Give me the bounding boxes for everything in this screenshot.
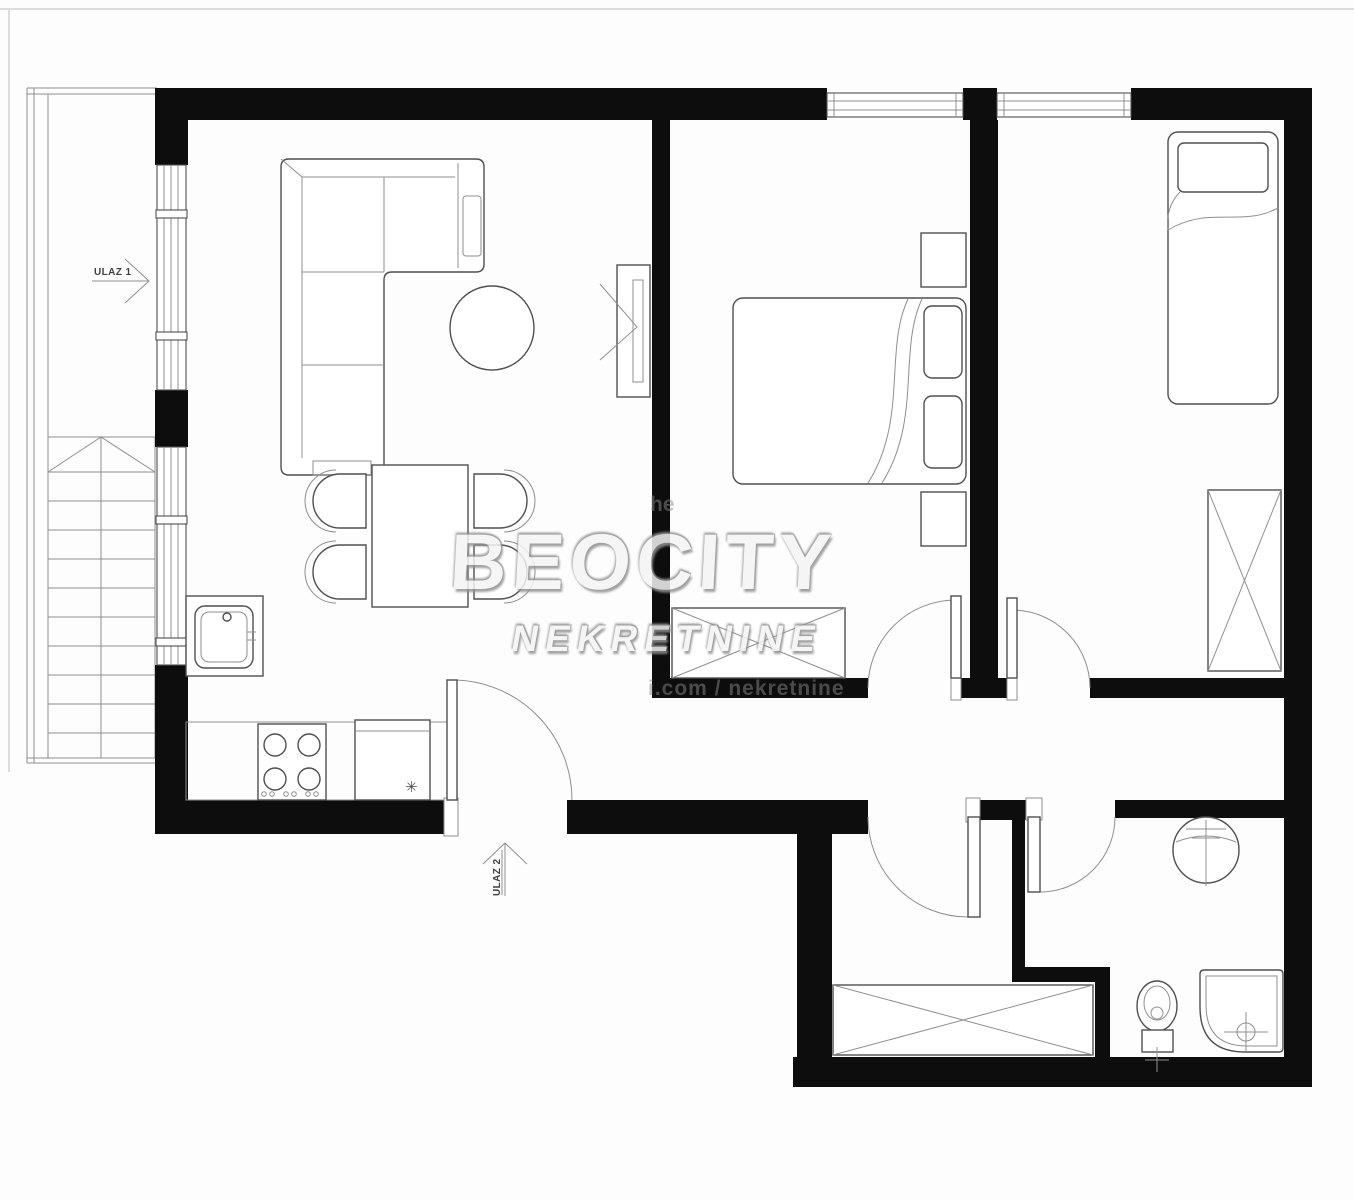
wall-bedrooms-bottom-c [1090, 678, 1284, 698]
door-swing [868, 817, 968, 917]
shower-tray [1200, 970, 1283, 1052]
living-room [281, 159, 650, 607]
door-leaf [447, 680, 457, 800]
wall-left-a [155, 88, 188, 165]
wall-bath-notch-v2 [1095, 982, 1110, 1057]
staircase [48, 437, 155, 758]
dining-chair [305, 470, 366, 532]
wardrobe [1208, 490, 1281, 671]
pillow [1178, 143, 1268, 192]
door-swing [1040, 817, 1115, 892]
floor-plan-drawing: ✳ [0, 0, 1354, 1200]
wall-kitchen-bottom [155, 800, 447, 834]
entrance-2-label: ULAZ 2 [492, 859, 503, 896]
bathroom [1137, 817, 1283, 1072]
wall-left-b [155, 390, 188, 447]
window-bedroom2 [997, 93, 1131, 117]
dining-table [372, 465, 468, 607]
wall-hall-bottom-left [567, 800, 868, 834]
wall-bedrooms-bottom-b [958, 678, 1008, 698]
washbasin [1173, 817, 1239, 886]
door-leaf [968, 817, 980, 917]
dining-chair [305, 541, 366, 603]
tv-unit [600, 265, 650, 397]
hallway [833, 798, 1115, 1055]
wall-bedroom1-bedroom2 [970, 120, 998, 678]
door-leaf [951, 596, 961, 678]
refrigerator: ✳ [355, 720, 430, 800]
nightstand [921, 233, 966, 287]
bedroom1-door [868, 596, 961, 700]
wall-bath-notch-v1 [1012, 820, 1025, 967]
entrance-door-2 [444, 680, 572, 836]
wall-bottom [793, 1057, 1312, 1087]
coffee-table [450, 286, 534, 370]
wall-bath-notch-h [1012, 967, 1110, 982]
door-swing [452, 680, 572, 800]
pillow [924, 396, 962, 468]
wall-right [1284, 88, 1312, 1087]
bedroom-2 [1007, 132, 1281, 700]
floor-plan: ✳ [0, 0, 1354, 1200]
hall-door [868, 798, 980, 917]
nightstand [921, 492, 966, 546]
entrance-1-label: ULAZ 1 [94, 267, 131, 278]
bathroom-door [1026, 798, 1115, 892]
door-swing [868, 600, 956, 688]
freezer-mark: ✳ [405, 778, 418, 796]
wall-top-left [155, 88, 827, 120]
door-leaf [1028, 817, 1040, 892]
entrance-2: ULAZ 2 [483, 843, 527, 896]
entrance-1: ULAZ 1 [92, 259, 149, 303]
wardrobe [833, 985, 1093, 1055]
bedroom2-door [1007, 598, 1090, 700]
door-swing [1012, 610, 1090, 688]
wall-bedrooms-bottom-a [652, 678, 868, 698]
dining-set [305, 465, 535, 607]
door-leaf [1007, 598, 1017, 678]
bedroom-1 [672, 233, 966, 700]
dining-chair [474, 470, 535, 532]
wall-living-bedroom1 [652, 120, 670, 678]
stove [258, 724, 326, 800]
landing-rail [27, 88, 157, 763]
pillow [924, 306, 962, 378]
kitchen: ✳ [186, 596, 447, 800]
kitchen-sink [186, 596, 263, 676]
wall-top-pillar [963, 88, 997, 120]
dining-chair [474, 541, 535, 603]
wall-bathroom-top [1115, 800, 1290, 818]
wall-lower-left [797, 834, 832, 1057]
wardrobe [672, 608, 845, 678]
window-bedroom1 [827, 93, 963, 117]
